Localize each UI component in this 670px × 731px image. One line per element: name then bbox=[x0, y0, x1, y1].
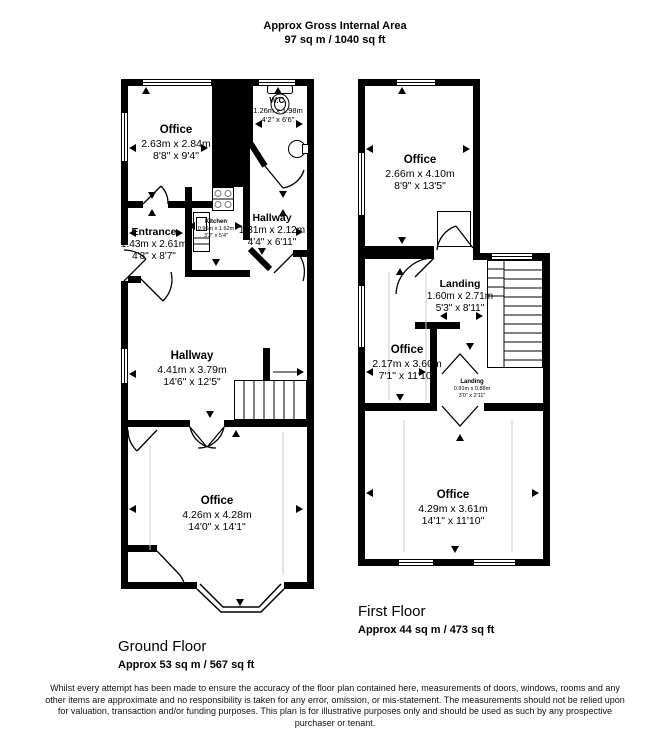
room-label-ground-hallway-main: Hallway 4.41m x 3.79m 14'6" x 12'5" bbox=[157, 350, 226, 389]
gross-area-heading: Approx Gross Internal Area bbox=[0, 19, 670, 33]
room-label-first-office-bottom: Office 4.29m x 3.61m 14'1" x 11'10" bbox=[418, 489, 487, 528]
disclaimer-text: Whilst every attempt has been made to en… bbox=[45, 683, 625, 729]
room-label-first-landing: Landing 1.60m x 2.71m 5'3" x 8'11" bbox=[427, 278, 493, 315]
sink-icon bbox=[289, 141, 309, 158]
floor-plan-canvas bbox=[0, 0, 670, 731]
first-floor-caption: First Floor Approx 44 sq m / 473 sq ft bbox=[358, 603, 494, 636]
stove-icon bbox=[213, 188, 234, 211]
room-label-ground-wc: W.C. 1.26m x 1.98m 4'2" x 6'6" bbox=[253, 96, 303, 124]
gross-area-value: 97 sq m / 1040 sq ft bbox=[0, 33, 670, 47]
room-label-ground-entrance: Entrance 1.43m x 2.61m 4'8" x 8'7" bbox=[121, 226, 187, 263]
room-label-ground-hallway-small: Hallway 1.31m x 2.12m 4'4" x 6'11" bbox=[239, 212, 305, 249]
page-title: Approx Gross Internal Area 97 sq m / 104… bbox=[0, 19, 670, 47]
room-label-ground-office-bottom: Office 4.26m x 4.28m 14'0" x 14'1" bbox=[182, 495, 251, 534]
room-label-first-office-mid: Office 2.17m x 3.60m 7'1" x 11'10" bbox=[372, 344, 441, 383]
ground-floor-caption: Ground Floor Approx 53 sq m / 567 sq ft bbox=[118, 638, 254, 671]
room-label-ground-office-top: Office 2.63m x 2.84m 8'8" x 9'4" bbox=[141, 124, 210, 163]
floorplan-page: Approx Gross Internal Area 97 sq m / 104… bbox=[0, 0, 670, 731]
bay-window bbox=[197, 584, 284, 612]
room-label-first-landing-small: Landing 0.91m x 0.88m 3'0" x 2'11" bbox=[454, 379, 490, 399]
room-label-first-office-top: Office 2.66m x 4.10m 8'9" x 13'5" bbox=[385, 154, 454, 193]
room-label-ground-kitchen: Kitchen 0.96m x 1.62m 3'2" x 5'4" bbox=[198, 219, 234, 239]
